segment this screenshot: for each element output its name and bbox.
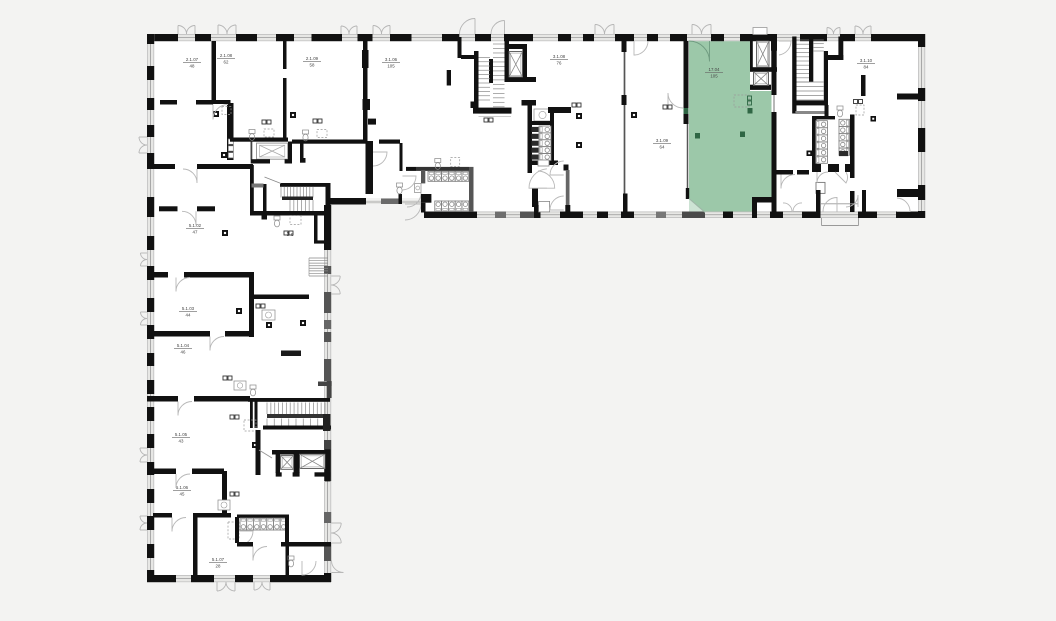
svg-text:64: 64 [660, 145, 665, 150]
svg-text:58: 58 [310, 63, 315, 68]
svg-text:5.1.06: 5.1.06 [176, 485, 189, 490]
svg-text:45: 45 [180, 492, 185, 497]
svg-text:3.1.06: 3.1.06 [385, 57, 398, 62]
svg-text:76: 76 [557, 61, 562, 66]
svg-text:5.1.02: 5.1.02 [189, 223, 202, 228]
svg-text:47: 47 [193, 230, 198, 235]
svg-text:5.1.03: 5.1.03 [182, 306, 195, 311]
svg-text:3.1.08: 3.1.08 [553, 54, 566, 59]
svg-text:46: 46 [181, 350, 186, 355]
svg-text:48: 48 [190, 64, 195, 69]
svg-text:5.1.07: 5.1.07 [212, 557, 225, 562]
svg-text:5.1.05: 5.1.05 [175, 432, 188, 437]
svg-text:84: 84 [864, 65, 869, 70]
svg-text:105: 105 [387, 64, 395, 69]
svg-text:17.04: 17.04 [709, 67, 721, 72]
svg-text:2.1.09: 2.1.09 [306, 56, 319, 61]
svg-text:5.1.04: 5.1.04 [177, 343, 190, 348]
svg-text:62: 62 [224, 60, 229, 65]
svg-text:105: 105 [710, 74, 718, 79]
svg-text:28: 28 [216, 564, 221, 569]
svg-text:43: 43 [179, 439, 184, 444]
svg-text:2.1.08: 2.1.08 [220, 53, 233, 58]
svg-text:44: 44 [186, 313, 191, 318]
svg-text:2.1.07: 2.1.07 [186, 57, 199, 62]
svg-text:3.1.10: 3.1.10 [860, 58, 873, 63]
svg-text:3.1.09: 3.1.09 [656, 138, 669, 143]
